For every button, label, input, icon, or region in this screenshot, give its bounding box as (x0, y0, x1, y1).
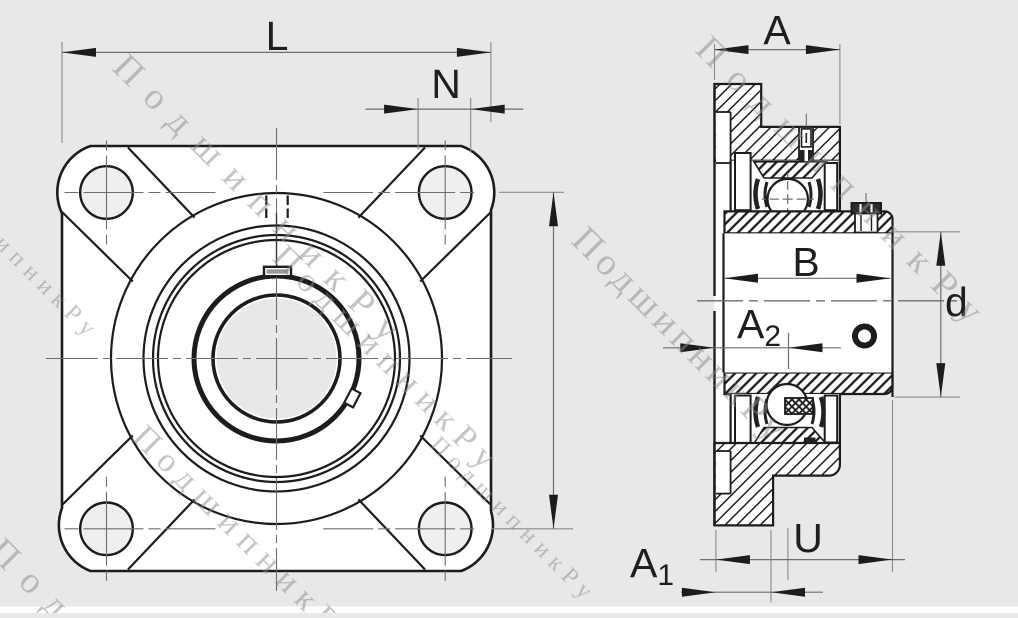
svg-text:U: U (793, 515, 823, 561)
svg-text:B: B (792, 239, 819, 285)
svg-text:N: N (431, 61, 461, 107)
svg-text:A: A (763, 7, 791, 53)
svg-text:L: L (266, 13, 289, 59)
